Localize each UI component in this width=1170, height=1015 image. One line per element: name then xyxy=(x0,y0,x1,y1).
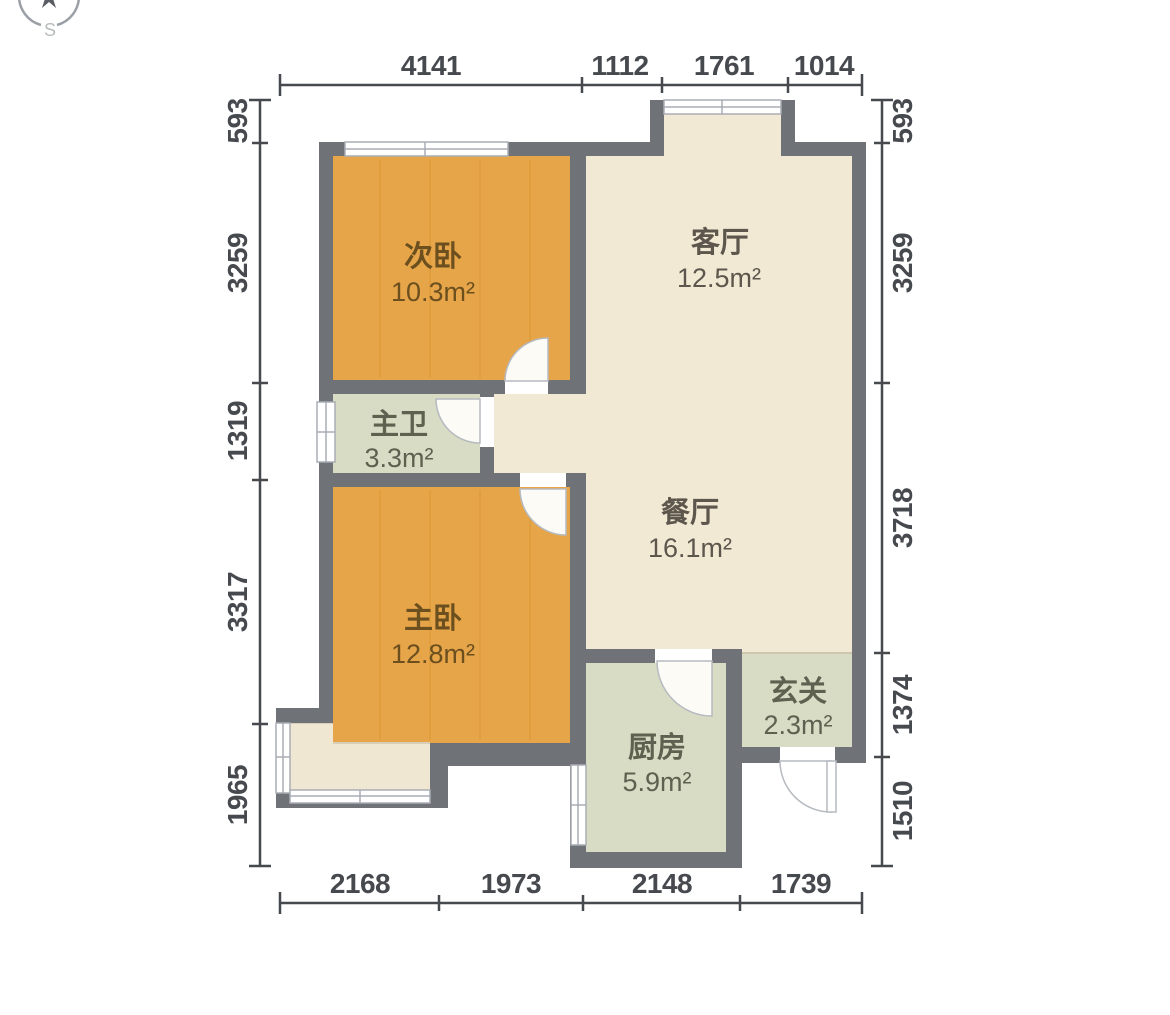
dim-right-1: 593 xyxy=(887,98,918,143)
window-icon-kitchen-left xyxy=(571,765,586,845)
wall xyxy=(276,708,333,723)
room-label-entry: 玄关 xyxy=(769,674,827,708)
compass-arc-right xyxy=(57,0,79,25)
window-icon-master-bath xyxy=(317,402,335,462)
hallway-floor xyxy=(494,394,586,473)
dim-left-3: 1319 xyxy=(222,401,253,461)
dim-bottom-1: 2168 xyxy=(330,868,390,899)
room-area-kitchen: 5.9m² xyxy=(622,767,691,797)
dim-left-5: 1965 xyxy=(222,765,253,825)
room-area-living-room: 12.5m² xyxy=(677,263,761,293)
dim-bottom-4: 1739 xyxy=(771,868,831,899)
dim-bottom-3: 2148 xyxy=(632,868,692,899)
wall xyxy=(430,743,586,766)
room-label-master-bedroom: 主卧 xyxy=(404,602,462,635)
dim-top-3: 1761 xyxy=(694,50,754,81)
wall xyxy=(570,852,742,868)
room-area-master-bedroom: 12.8m² xyxy=(391,639,475,669)
dim-bottom-2: 1973 xyxy=(481,868,541,899)
door-arc-icon xyxy=(780,761,831,812)
dim-top-2: 1112 xyxy=(591,50,648,81)
wall xyxy=(276,793,290,808)
compass-icon: S xyxy=(16,0,82,40)
living-room-bay-floor xyxy=(664,114,781,156)
room-area-secondary-bedroom: 10.3m² xyxy=(391,277,475,307)
room-label-living-room: 客厅 xyxy=(691,225,749,259)
room-area-dining-room: 16.1m² xyxy=(648,533,732,563)
room-area-master-bath: 3.3m² xyxy=(364,443,433,473)
room-label-kitchen: 厨房 xyxy=(628,731,686,764)
room-label-secondary-bedroom: 次卧 xyxy=(404,240,462,273)
wall xyxy=(570,142,586,394)
compass-needle xyxy=(42,0,56,8)
window-icon-living-bay xyxy=(664,100,781,114)
room-area-entry: 2.3m² xyxy=(763,710,832,740)
window-icon-balcony-bottom xyxy=(290,790,430,803)
floorplan-canvas: S xyxy=(0,0,1170,1015)
dim-right-4: 1374 xyxy=(887,674,918,735)
dim-right-5: 1510 xyxy=(887,781,918,841)
floorplan-page: S xyxy=(0,0,1170,1015)
dim-left-1: 593 xyxy=(222,98,253,143)
door-entry xyxy=(780,747,836,812)
dim-top-4: 1014 xyxy=(794,50,855,81)
dim-right-2: 3259 xyxy=(887,233,918,293)
dim-right-3: 3718 xyxy=(887,488,918,548)
compass-arc-left xyxy=(19,0,41,25)
window-icon-secondary-bedroom xyxy=(345,142,508,156)
wall xyxy=(852,142,866,763)
door-leaf xyxy=(827,761,836,812)
dim-left-2: 3259 xyxy=(222,233,253,293)
compass-south-label: S xyxy=(44,20,56,40)
wall xyxy=(430,743,448,808)
dim-left-4: 3317 xyxy=(222,572,253,632)
window-icon-balcony-left xyxy=(276,723,290,793)
room-label-dining-room: 餐厅 xyxy=(661,496,719,529)
room-label-master-bath: 主卫 xyxy=(370,408,428,441)
dim-top-1: 4141 xyxy=(401,50,461,81)
